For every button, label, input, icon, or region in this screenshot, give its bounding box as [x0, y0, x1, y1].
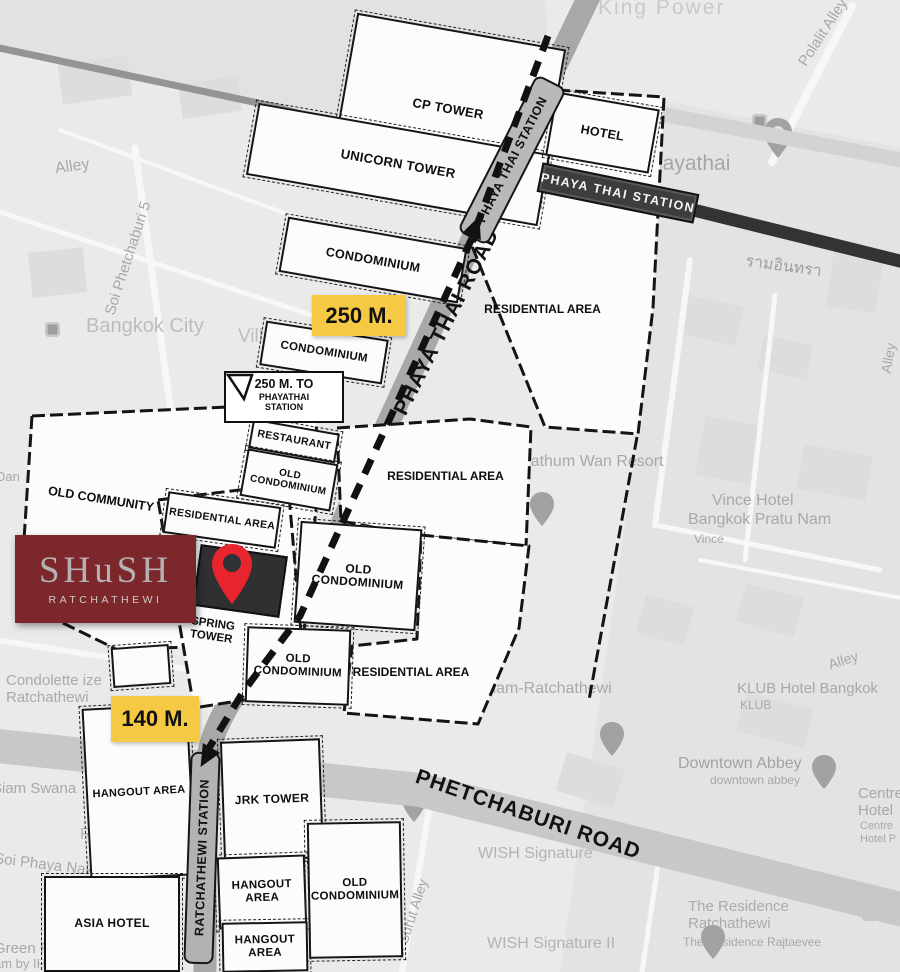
distance-badge-140m: 140 M. [111, 696, 199, 742]
brand-name: SHuSH [39, 552, 172, 589]
map-canvas[interactable]: King Power Polalit Alley Alley Soi Phetc… [0, 0, 900, 972]
route-arrow-up-icon [462, 212, 489, 240]
route-arrow-down-icon [192, 743, 220, 772]
distance-badge-250m: 250 M. [312, 295, 406, 336]
distance-badge-label: 140 M. [121, 706, 188, 732]
brand-subtitle: RATCHATHEWI [49, 594, 163, 606]
callout-line3: STATION [226, 402, 342, 412]
callout-tail [226, 373, 256, 403]
callout-distance-to-station: 250 M. TO PHAYATHAI STATION [224, 371, 344, 423]
distance-badge-label: 250 M. [325, 303, 392, 329]
route-layer [0, 0, 900, 972]
site-location-pin-icon [206, 540, 258, 608]
brand-logo: SHuSH RATCHATHEWI [15, 535, 196, 623]
